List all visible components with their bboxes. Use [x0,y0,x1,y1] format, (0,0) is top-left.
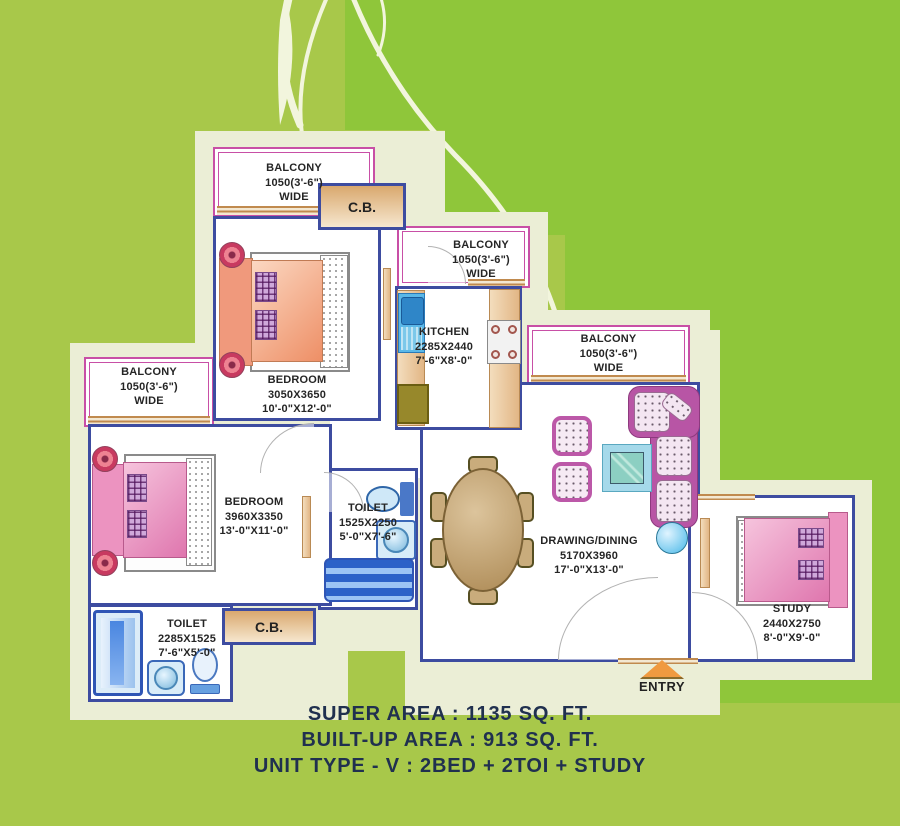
pillow [255,272,277,302]
tv-panel [383,268,391,340]
toilet-wc-tank [190,684,220,694]
bedroom-top-label: BEDROOM3050X365010'-0"X12'-0" [213,372,381,418]
tv-panel [700,518,710,588]
study-window [695,494,755,500]
sofa-cushion [656,436,692,476]
stove-burner [508,350,517,359]
backdrop-step [705,320,900,480]
super-area-text: SUPER AREA : 1135 SQ. FT. [0,703,900,726]
pillow [127,474,147,502]
ottoman [552,416,592,456]
entry-label: ENTRY [630,679,694,694]
toilet-bottom-label: TOILET2285X15257'-6"X5'-0" [136,615,238,663]
pillow [127,510,147,538]
coffee-table [602,444,652,492]
washing-machine [147,660,185,696]
ottoman [552,462,592,502]
kitchen-appliance [397,384,429,424]
coffee-table-glass [610,452,644,484]
washer-drum [154,666,178,690]
bedroom-left-label: BEDROOM3960X335013'-0"X11'-0" [180,494,328,540]
stove-burner [491,325,500,334]
cupboard-bottom-label: C.B. [255,619,283,635]
floor-plan-canvas: C.B. C.B. [0,0,900,826]
entry-threshold [618,658,698,664]
kitchen-stove [487,320,521,364]
balcony-kitchen-label: BALCONY1050(3'-6")WIDE [432,236,530,284]
kitchen-label: KITCHEN2285X24407'-6"X8'-0" [398,324,490,370]
toilet-mid-label: TOILET1525X22505'-0"X7'-6" [320,494,416,552]
sofa-cushion [656,480,692,522]
pillow [798,560,824,580]
stove-burner [508,325,517,334]
bed-duvet [320,255,348,368]
bedside-table [219,242,245,268]
sink-bowl [401,297,424,325]
bed-headboard [828,512,848,608]
unit-type-text: UNIT TYPE - V : 2BED + 2TOI + STUDY [0,755,900,778]
floor-plan-page: { "colors": { "background_green": "#a8c8… [0,0,900,826]
pillow [255,310,277,340]
bed-headboard [92,464,124,556]
bathtub-water [110,621,124,685]
bedside-table [92,550,118,576]
dining-table [442,468,524,592]
balcony-top-label: BALCONY1050(3'-6")WIDE [213,157,375,209]
bedside-table [92,446,118,472]
balcony-right-label: BALCONY1050(3'-6")WIDE [527,330,690,378]
balcony-left-label: BALCONY1050(3'-6")WIDE [84,362,214,412]
study-label: STUDY2440X27508'-0"X9'-0" [722,600,862,648]
pillow [798,528,824,548]
built-up-area-text: BUILT-UP AREA : 913 SQ. FT. [0,729,900,752]
stove-burner [491,350,500,359]
shower-tray [324,558,414,602]
bed-headboard [219,258,253,366]
drawing-dining-label: DRAWING/DINING5170X396017'-0"X13'-0" [513,532,665,580]
